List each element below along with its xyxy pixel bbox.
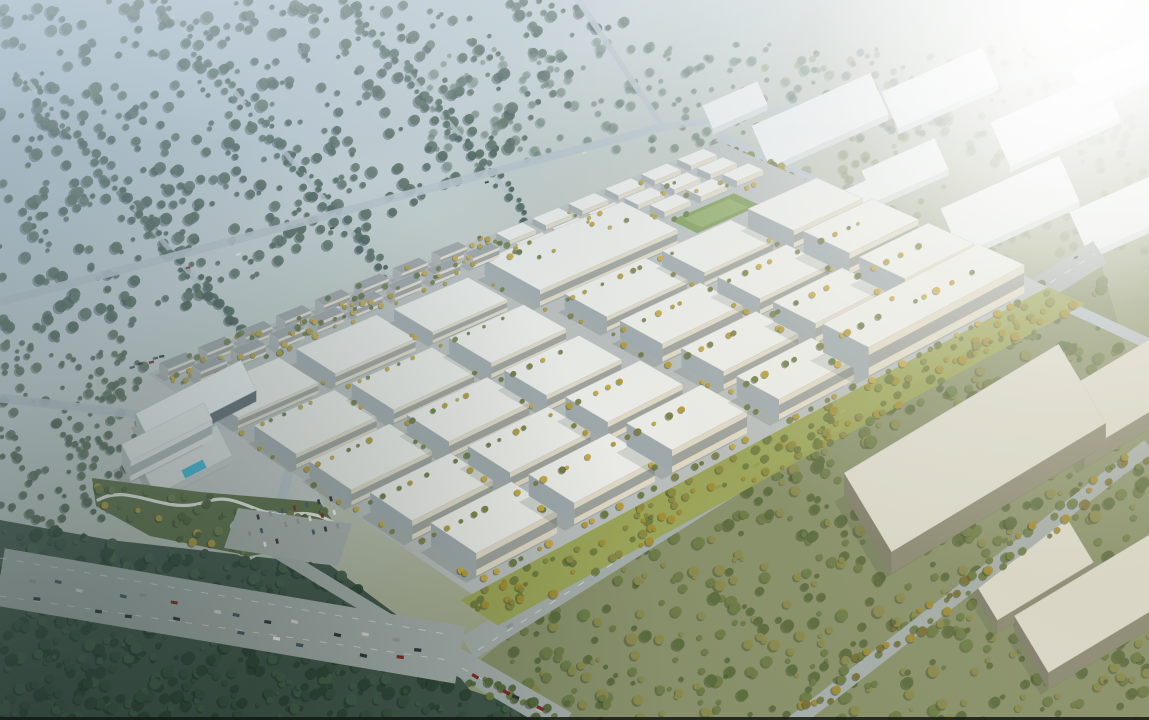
screenshot-root bbox=[0, 0, 1149, 720]
aerial-render bbox=[0, 0, 1149, 720]
